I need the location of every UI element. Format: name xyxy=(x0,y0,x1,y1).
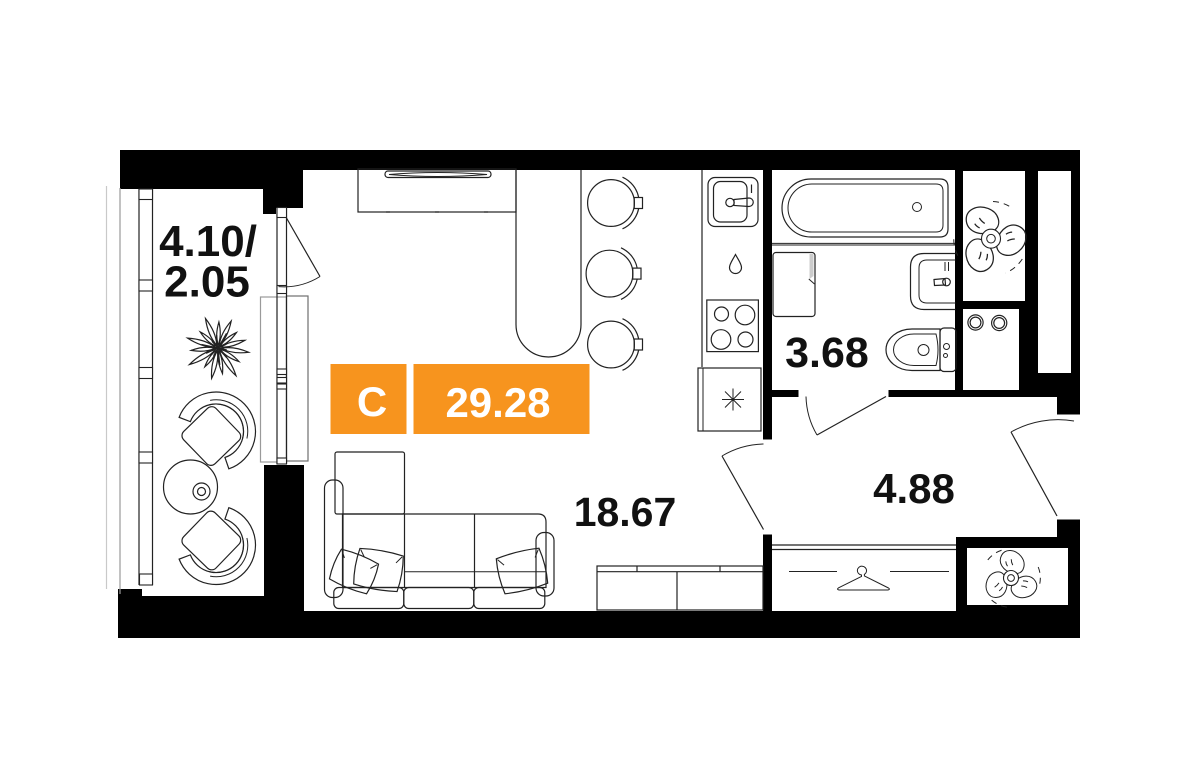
svg-text:4.88: 4.88 xyxy=(873,465,955,512)
svg-text:2.05: 2.05 xyxy=(164,258,250,307)
svg-text:C: C xyxy=(357,378,387,425)
svg-text:29.28: 29.28 xyxy=(445,379,550,426)
svg-text:18.67: 18.67 xyxy=(574,489,677,535)
svg-text:3.68: 3.68 xyxy=(785,329,869,377)
